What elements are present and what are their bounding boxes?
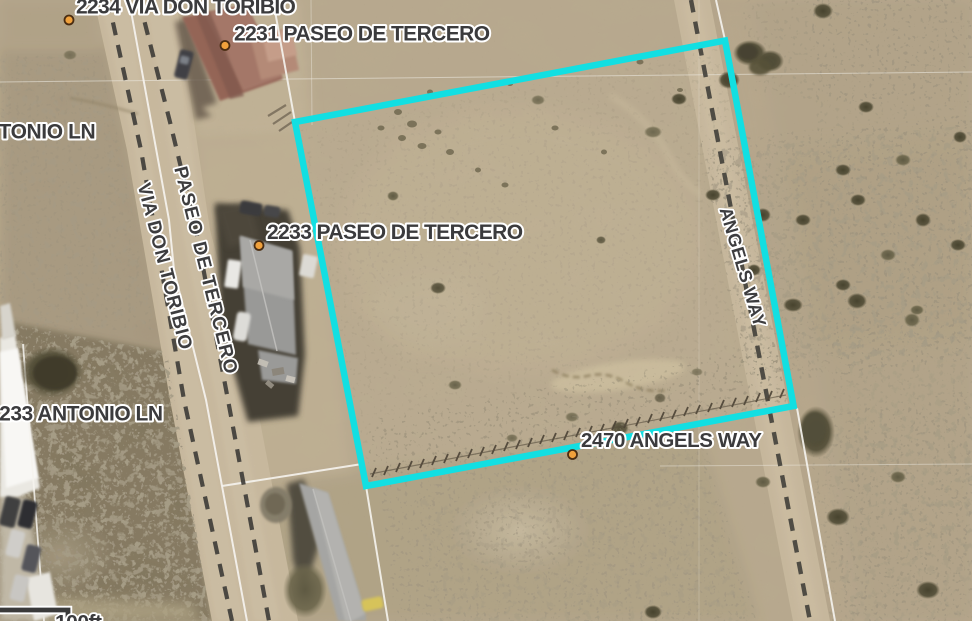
svg-text:2234 VIA DON TORIBIO: 2234 VIA DON TORIBIO xyxy=(76,0,296,19)
svg-text:2233 PASEO DE TERCERO: 2233 PASEO DE TERCERO xyxy=(267,221,523,244)
svg-text:ANTONIO LN: ANTONIO LN xyxy=(0,121,95,144)
svg-text:2233 ANTONIO LN: 2233 ANTONIO LN xyxy=(0,403,163,426)
svg-text:2470 ANGELS WAY: 2470 ANGELS WAY xyxy=(581,429,762,452)
svg-text:100ft: 100ft xyxy=(55,612,102,621)
svg-text:2231 PASEO DE TERCERO: 2231 PASEO DE TERCERO xyxy=(234,23,490,46)
